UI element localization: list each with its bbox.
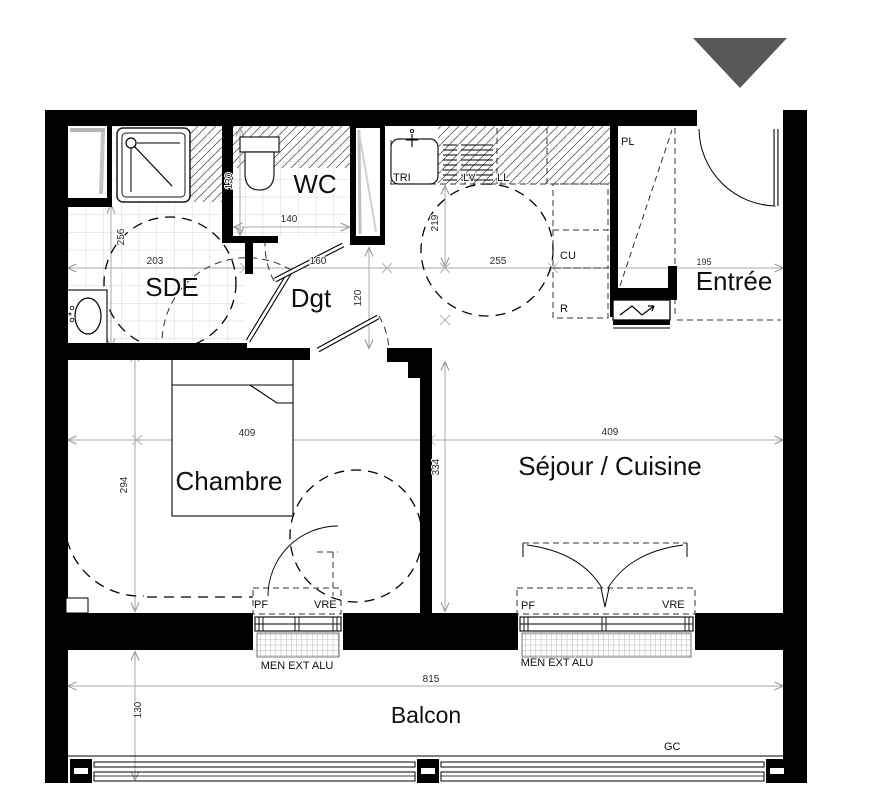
dim-sejour-depth: 334 xyxy=(431,458,442,475)
floor-plan-svg: SDE WC Dgt Entrée Chambre Séjour / Cuisi… xyxy=(0,0,890,800)
label-vre-sejour: VRE xyxy=(662,599,685,611)
window-sill xyxy=(522,633,691,657)
label-wc: WC xyxy=(293,169,336,199)
window-sill xyxy=(257,633,339,657)
label-entree: Entrée xyxy=(696,266,773,296)
dim-sejour-width: 409 xyxy=(602,427,619,438)
label-dgt: Dgt xyxy=(291,283,332,313)
dim-dgt-depth: 120 xyxy=(353,289,364,306)
label-chambre: Chambre xyxy=(176,466,283,496)
dim-dgt-width: 160 xyxy=(310,256,327,267)
toilet xyxy=(240,137,279,190)
label-lv: LV xyxy=(463,172,476,184)
dim-balcon-depth: 130 xyxy=(133,701,144,718)
dim-sde-depth: 256 xyxy=(116,228,127,245)
dim-sde-width: 203 xyxy=(147,256,164,267)
label-vre-chambre: VRE xyxy=(314,599,337,611)
label-sejour-cuisine: Séjour / Cuisine xyxy=(518,451,702,481)
label-cu: CU xyxy=(560,250,576,262)
label-pf-chambre: PF xyxy=(254,599,268,611)
electrical-panel xyxy=(613,300,670,328)
label-gc: GC xyxy=(664,741,681,753)
shower xyxy=(117,128,190,202)
dim-wc-width: 140 xyxy=(281,214,298,225)
label-balcon: Balcon xyxy=(391,702,461,728)
label-sde: SDE xyxy=(145,272,198,302)
label-pl: PL xyxy=(621,136,634,148)
dim-entree-width: 195 xyxy=(696,257,711,267)
dim-chambre-depth: 294 xyxy=(119,476,130,493)
dim-balcon-width: 815 xyxy=(423,674,440,685)
dim-wc-depth: 130 xyxy=(224,172,235,189)
wall-notch xyxy=(66,598,88,613)
floor-plan-page: SDE WC Dgt Entrée Chambre Séjour / Cuisi… xyxy=(0,0,890,800)
label-men-ext-alu-chambre: MEN EXT ALU xyxy=(261,660,334,672)
washbasin xyxy=(67,290,107,345)
label-pf-sejour: PF xyxy=(521,600,535,612)
label-ll: LL xyxy=(497,172,509,184)
dim-chambre-width: 409 xyxy=(239,428,256,439)
dim-kitchen-depth: 219 xyxy=(430,214,441,231)
dim-kitchen-width: 255 xyxy=(490,256,507,267)
label-men-ext-alu-sejour: MEN EXT ALU xyxy=(521,657,594,669)
label-tri: TRI xyxy=(393,172,411,184)
label-r: R xyxy=(560,303,568,315)
